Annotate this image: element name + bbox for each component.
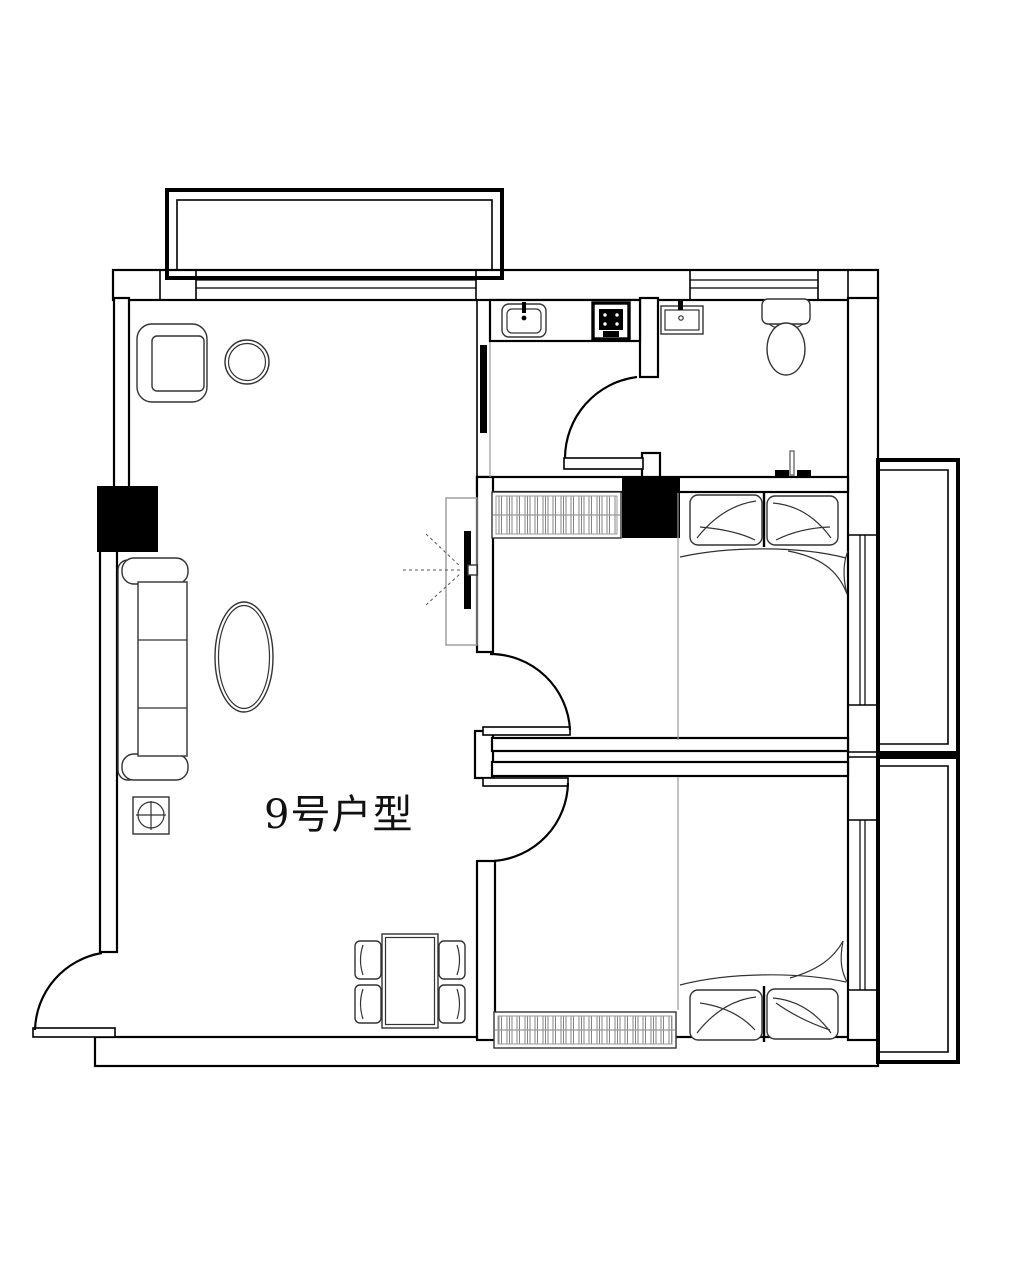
stove: [593, 303, 629, 339]
tv-sightlines: [403, 534, 461, 605]
sofa: [118, 558, 188, 780]
plan-title: 9号户型: [264, 782, 464, 840]
bed-bedroom2: [678, 777, 847, 1042]
toilet: [762, 299, 810, 375]
tv: [464, 531, 477, 609]
interior-walls: [475, 298, 848, 1040]
wardrobe-bedroom2: [494, 1012, 676, 1048]
column-center: [622, 477, 680, 538]
entry-door: [33, 953, 115, 1037]
bedroom1-door: [483, 654, 570, 735]
column-left: [97, 486, 158, 552]
floor-lamp: [133, 797, 169, 834]
bathroom-basin: [661, 299, 703, 334]
kitchen-sink: [502, 302, 546, 337]
dining-table: [382, 934, 438, 1028]
round-stool: [225, 340, 269, 384]
shower-tap: [775, 451, 811, 477]
balcony-right-upper: [878, 460, 958, 753]
floorplan-canvas: 9号户型: [0, 0, 1024, 1280]
armchair: [137, 324, 207, 402]
balcony-right-lower: [878, 757, 958, 1062]
wardrobe-bedroom1: [492, 492, 621, 538]
bathroom-door: [564, 377, 643, 469]
balcony-top: [167, 190, 502, 278]
coffee-table: [215, 602, 273, 712]
floorplan-drawing: [0, 0, 1024, 1280]
bed-bedroom1: [678, 492, 848, 740]
bedroom2-door: [483, 778, 568, 861]
